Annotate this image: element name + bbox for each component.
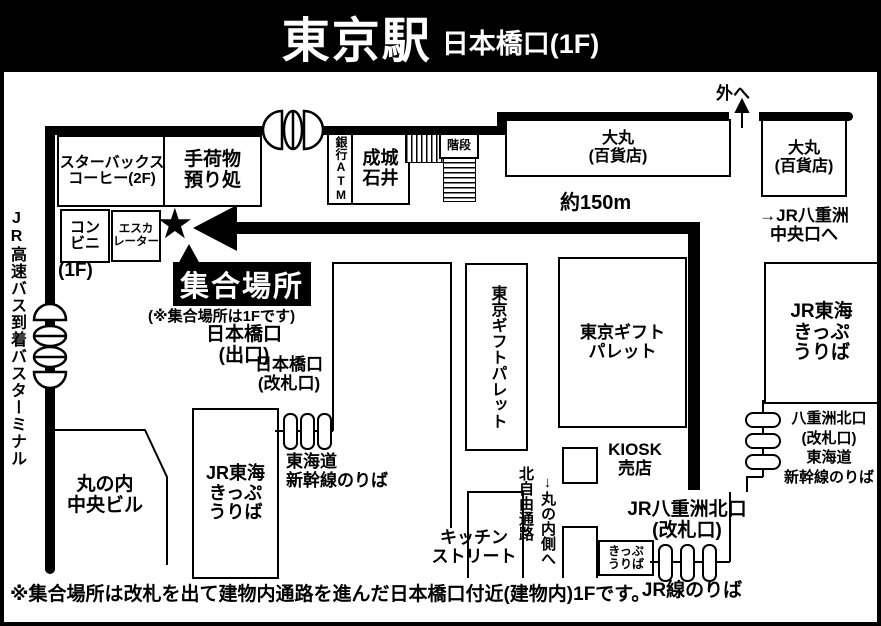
up-arrow-icon xyxy=(736,100,748,128)
yaesu-kita-ticket-gate-icon xyxy=(746,400,780,492)
nihonbashi-ticket-gate-icon xyxy=(275,414,333,449)
marunouchi-building-outline xyxy=(50,430,167,565)
central-block-outline xyxy=(333,263,451,528)
small-box-outline xyxy=(563,527,597,578)
revolving-door-icon xyxy=(34,304,66,388)
title-band: 東京駅 日本橋口(1F) xyxy=(0,0,881,72)
kitchen-street-label: キッチン ストリート xyxy=(420,528,528,566)
stairs-label: 階段 xyxy=(439,133,479,159)
double-door-icon xyxy=(263,111,323,149)
station-map: 東京駅 日本橋口(1F) 約150m ★ 集合場所 (※集合場所は1Fです) ス… xyxy=(0,0,881,626)
kiosk-box xyxy=(563,448,597,483)
jr-line-ticket-gate-icon xyxy=(650,492,730,581)
page-subtitle: 日本橋口(1F) xyxy=(442,22,600,61)
page-title: 東京駅 xyxy=(282,1,432,71)
